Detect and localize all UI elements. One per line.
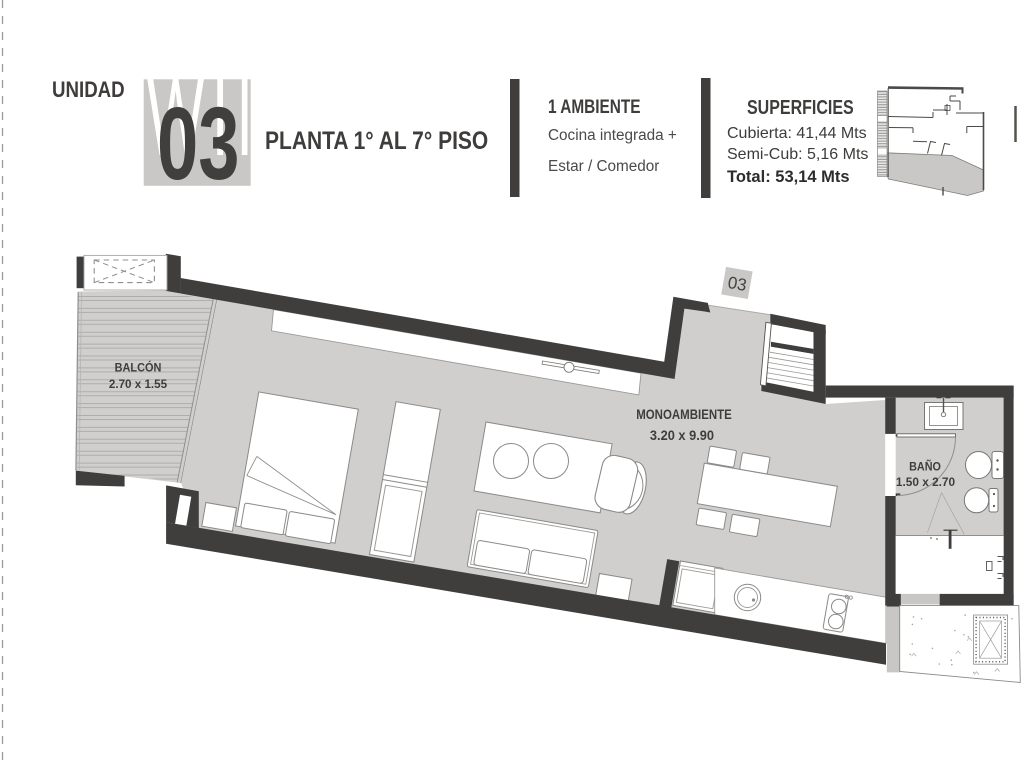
svg-text:1.50 x 2.70: 1.50 x 2.70 (896, 475, 955, 489)
svg-text:MONOAMBIENTE: MONOAMBIENTE (636, 406, 732, 422)
svg-text:Cocina integrada +: Cocina integrada + (548, 127, 677, 144)
svg-text:1 AMBIENTE: 1 AMBIENTE (548, 95, 641, 117)
svg-text:Total: 53,14 Mts: Total: 53,14 Mts (727, 168, 850, 186)
svg-text:UNIDAD: UNIDAD (52, 79, 125, 103)
svg-text:PLANTA 1° AL 7° PISO: PLANTA 1° AL 7° PISO (265, 126, 488, 154)
svg-text:Semi-Cub: 5,16 Mts: Semi-Cub: 5,16 Mts (727, 146, 868, 163)
svg-text:BALCÓN: BALCÓN (115, 361, 162, 374)
svg-text:3.20 x 9.90: 3.20 x 9.90 (650, 428, 714, 443)
svg-text:03: 03 (726, 273, 748, 295)
svg-text:BAÑO: BAÑO (909, 460, 941, 474)
svg-text:Cubierta: 41,44 Mts: Cubierta: 41,44 Mts (727, 125, 867, 142)
svg-text:03: 03 (157, 87, 239, 202)
svg-text:Estar / Comedor: Estar / Comedor (548, 158, 659, 175)
svg-text:SUPERFICIES: SUPERFICIES (747, 96, 854, 118)
svg-text:2.70 x 1.55: 2.70 x 1.55 (109, 377, 168, 391)
